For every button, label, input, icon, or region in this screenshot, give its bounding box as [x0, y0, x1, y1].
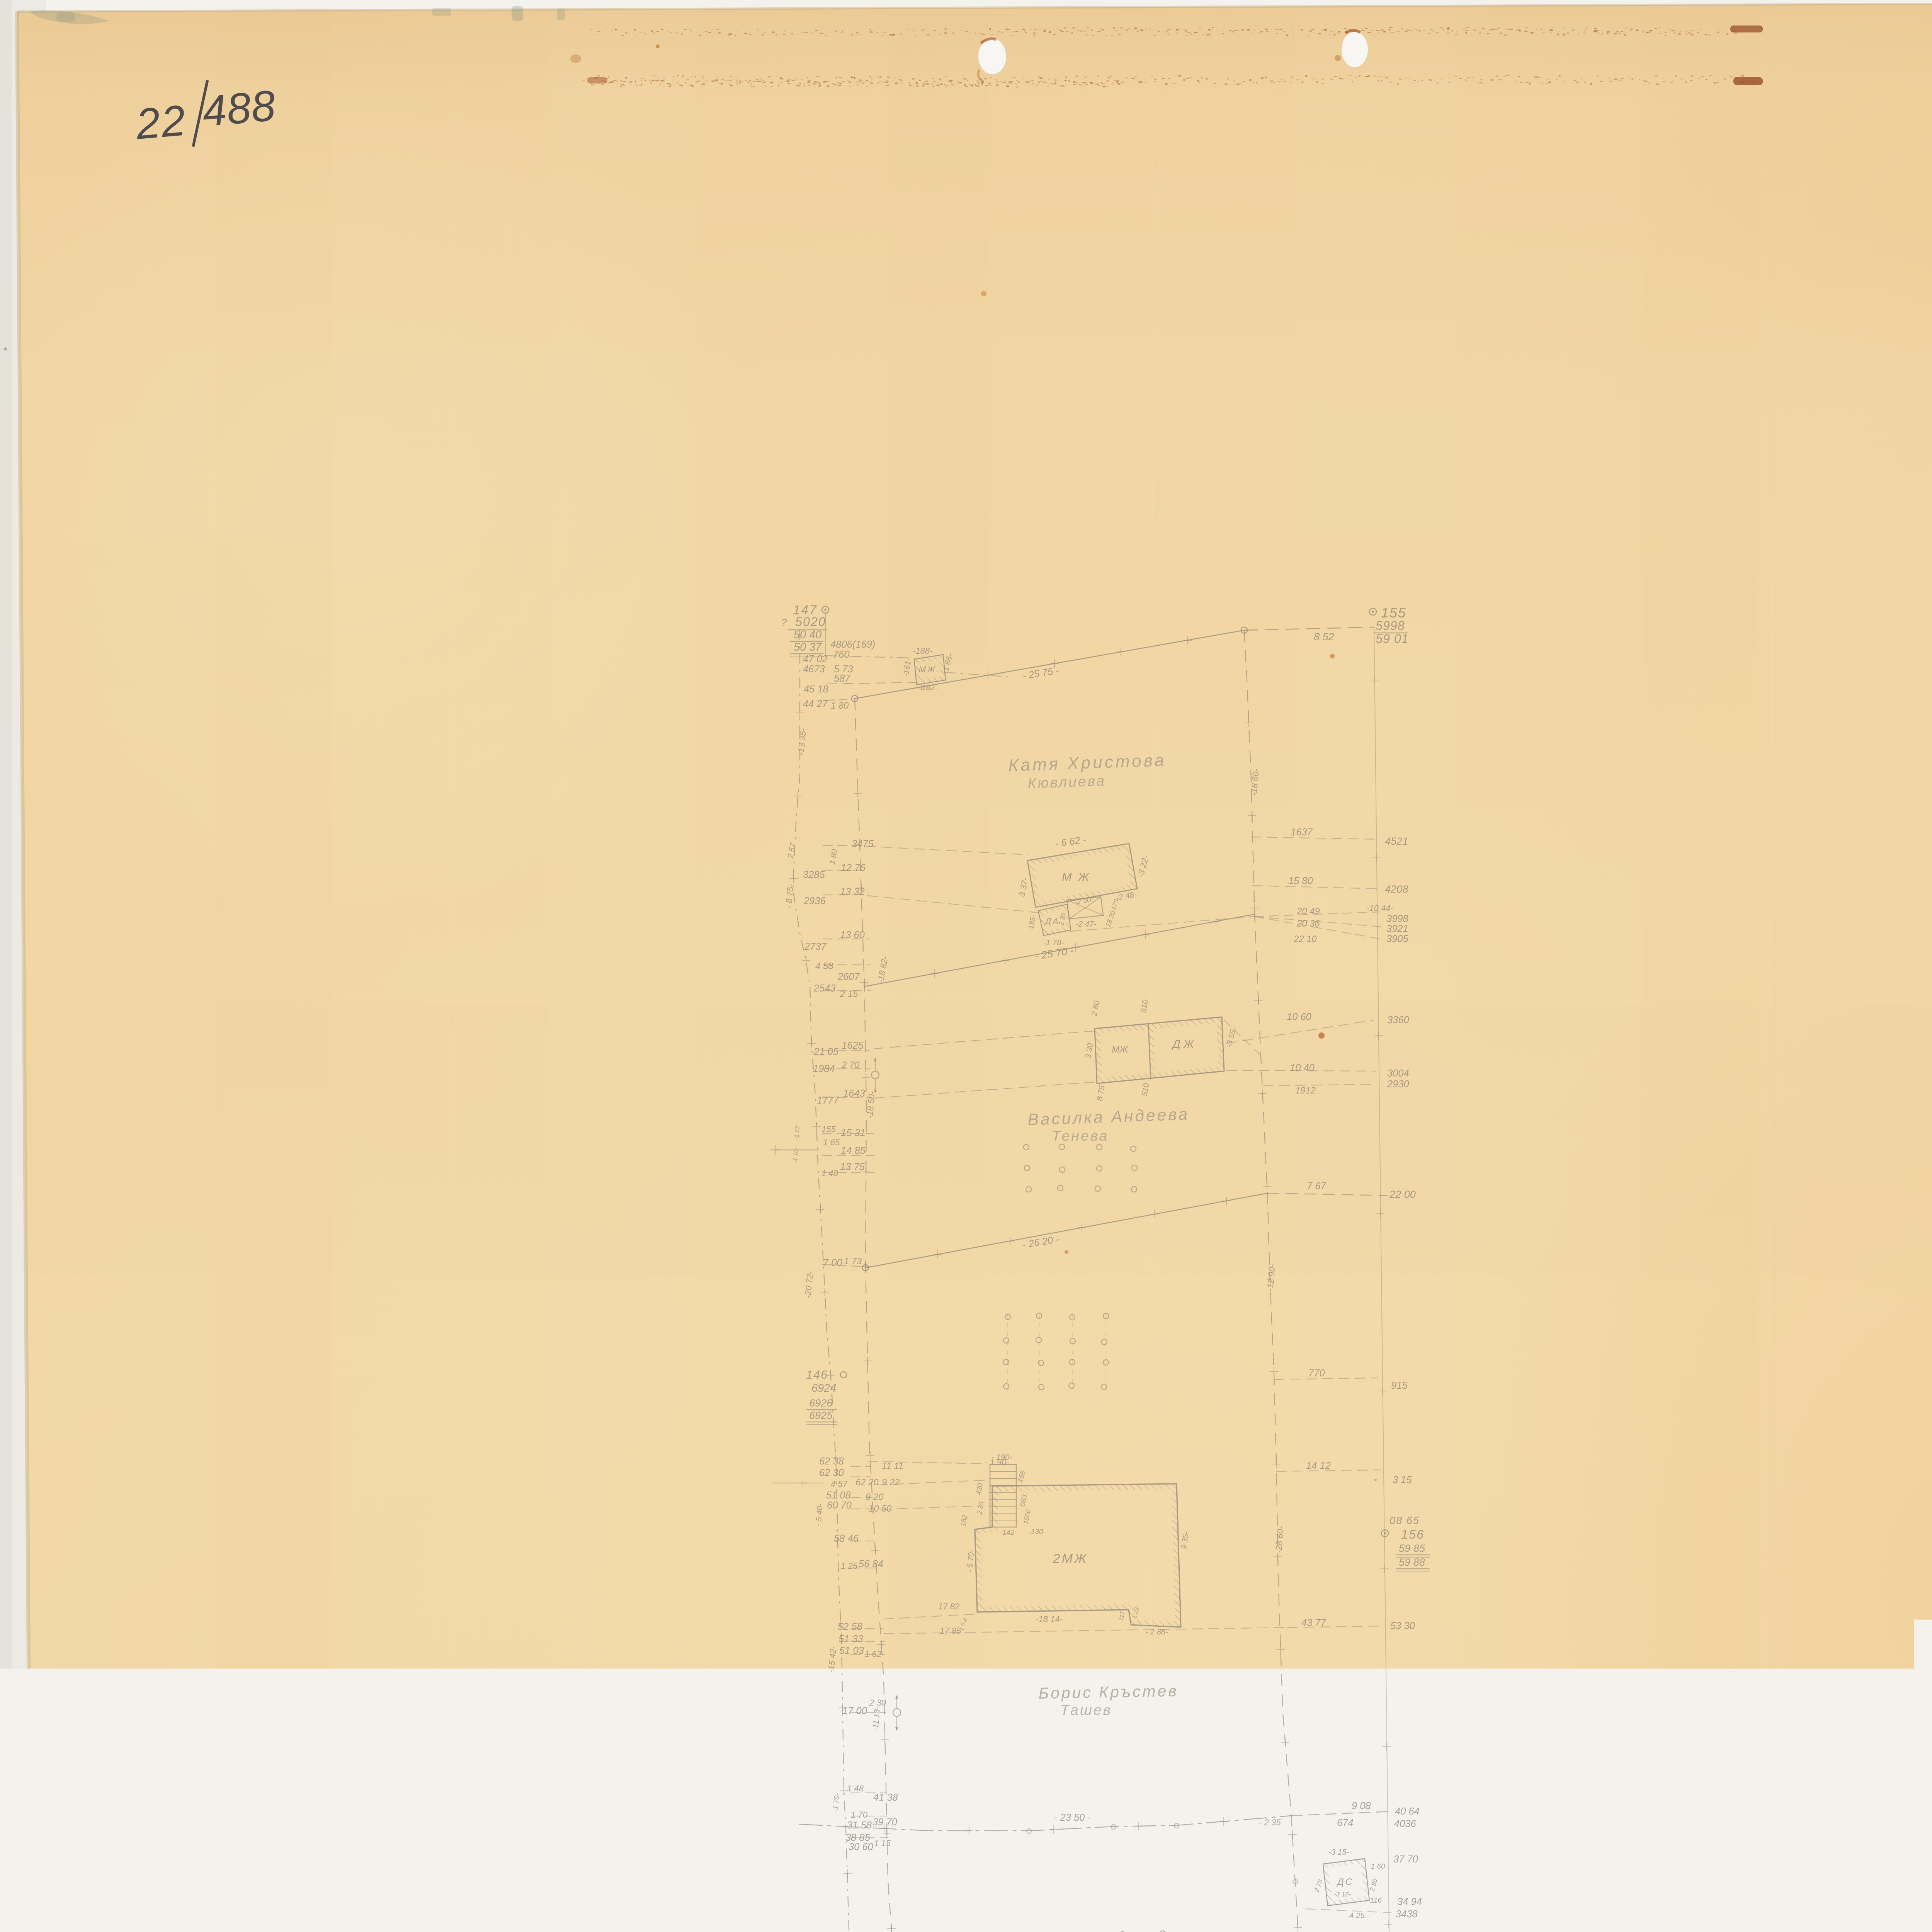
svg-text:1912: 1912	[1295, 1085, 1316, 1096]
svg-text:2737: 2737	[804, 941, 827, 952]
svg-text:Тенева: Тенева	[1052, 1128, 1109, 1144]
svg-text:156: 156	[1401, 1527, 1424, 1541]
svg-text:12 76: 12 76	[841, 862, 866, 873]
svg-text:587: 587	[834, 673, 850, 684]
svg-text:Кювлиева: Кювлиева	[1027, 772, 1106, 791]
svg-text:1 25: 1 25	[841, 1561, 858, 1571]
svg-text:674: 674	[1337, 1818, 1354, 1828]
svg-text:62 38: 62 38	[819, 1456, 844, 1467]
svg-text:155: 155	[1381, 605, 1406, 621]
svg-text:53 30: 53 30	[1390, 1621, 1415, 1631]
svg-text:-188-: -188-	[913, 646, 933, 656]
svg-text:3921: 3921	[1386, 923, 1408, 934]
svg-text:1 48: 1 48	[821, 1168, 838, 1178]
svg-text:-1 12-: -1 12-	[793, 1124, 801, 1140]
svg-text:4 57: 4 57	[831, 1479, 848, 1489]
svg-text:-10 44-: -10 44-	[1366, 903, 1393, 913]
svg-text:50 40: 50 40	[794, 629, 821, 641]
svg-text:146: 146	[806, 1368, 828, 1381]
svg-text:17 82: 17 82	[938, 1602, 959, 1611]
svg-text:6926: 6926	[809, 1397, 833, 1409]
svg-text:3438: 3438	[1396, 1909, 1418, 1920]
svg-text:Д Ж: Д Ж	[1172, 1038, 1194, 1051]
svg-text:1 80: 1 80	[831, 701, 849, 711]
svg-text:20 36: 20 36	[1296, 918, 1320, 929]
svg-text:1 70: 1 70	[851, 1810, 868, 1820]
svg-text:-2 47-: -2 47-	[1076, 920, 1096, 929]
svg-text:4673: 4673	[803, 664, 825, 675]
svg-text:1777: 1777	[817, 1095, 839, 1106]
svg-text:-18 14-: -18 14-	[1036, 1614, 1063, 1624]
svg-text:116: 116	[1370, 1896, 1382, 1904]
svg-text:- 1 90-: - 1 90-	[985, 1458, 1009, 1467]
svg-text:34 94: 34 94	[1397, 1896, 1422, 1907]
svg-text:40 64: 40 64	[1395, 1806, 1420, 1817]
svg-text:59 85: 59 85	[1399, 1542, 1425, 1554]
svg-text:-1 78-: -1 78-	[1043, 939, 1064, 947]
svg-text:3004: 3004	[1387, 1068, 1409, 1079]
svg-text:2543: 2543	[813, 983, 836, 994]
svg-text:488: 488	[200, 81, 277, 136]
svg-text:760: 760	[833, 649, 850, 660]
svg-text:- 2 35: - 2 35	[1259, 1818, 1281, 1827]
svg-text:4806(169): 4806(169)	[830, 639, 875, 650]
svg-text:770: 770	[1308, 1368, 1325, 1379]
svg-text:1 65: 1 65	[823, 1138, 840, 1147]
svg-text:47 02: 47 02	[803, 654, 828, 665]
svg-text:4521: 4521	[1385, 835, 1408, 847]
svg-text:13 32: 13 32	[840, 886, 865, 897]
svg-text:1 15: 1 15	[874, 1838, 891, 1848]
svg-text:-3 15-: -3 15-	[1328, 1848, 1349, 1857]
svg-text:22: 22	[134, 96, 189, 148]
svg-text:3905: 3905	[1386, 934, 1409, 944]
svg-text:45 18: 45 18	[804, 684, 829, 695]
svg-text:155: 155	[821, 1124, 836, 1134]
svg-text:4036: 4036	[1394, 1818, 1417, 1829]
svg-text:-130-: -130-	[1029, 1527, 1046, 1536]
svg-text:51 08: 51 08	[826, 1490, 851, 1501]
svg-text:8 52: 8 52	[1314, 631, 1334, 643]
svg-text:3360: 3360	[1387, 1015, 1409, 1026]
svg-text:7 67: 7 67	[1307, 1181, 1326, 1192]
svg-text:1 73: 1 73	[844, 1256, 862, 1267]
svg-text:14 12: 14 12	[1306, 1461, 1331, 1471]
svg-text:9 08: 9 08	[1352, 1801, 1371, 1811]
svg-text:1637: 1637	[1291, 827, 1313, 838]
svg-text:2936: 2936	[803, 896, 826, 906]
svg-text:1 60: 1 60	[1371, 1862, 1385, 1870]
svg-text:3285: 3285	[803, 869, 825, 880]
svg-text:22 10: 22 10	[1293, 934, 1317, 944]
svg-text:14 85: 14 85	[841, 1145, 866, 1156]
svg-text:31 58: 31 58	[847, 1820, 872, 1831]
svg-text:10 40: 10 40	[1290, 1063, 1315, 1073]
svg-text:4208: 4208	[1385, 883, 1408, 895]
svg-text:2МЖ: 2МЖ	[1053, 1551, 1088, 1566]
svg-text:6924: 6924	[811, 1382, 836, 1395]
svg-text:МЖ: МЖ	[1112, 1044, 1128, 1055]
svg-text:9 22: 9 22	[882, 1477, 900, 1488]
svg-text:62 20: 62 20	[855, 1477, 879, 1488]
svg-text:50 37: 50 37	[794, 641, 822, 653]
svg-text:Борис Кръстев: Борис Кръстев	[1038, 1682, 1179, 1702]
svg-text:?: ?	[781, 617, 787, 628]
svg-text:-3 16-: -3 16-	[1334, 1891, 1351, 1898]
svg-text:37 70: 37 70	[1393, 1854, 1418, 1865]
svg-text:17 00: 17 00	[842, 1706, 867, 1716]
svg-text:915: 915	[1391, 1380, 1408, 1391]
svg-text:15 31: 15 31	[841, 1128, 866, 1138]
svg-text:08 65: 08 65	[1389, 1514, 1420, 1526]
svg-text:4 58: 4 58	[815, 961, 833, 971]
svg-text:11 11: 11 11	[882, 1461, 903, 1471]
svg-text:3 15: 3 15	[1393, 1475, 1412, 1485]
svg-text:59 88: 59 88	[1399, 1556, 1425, 1568]
svg-text:20 49: 20 49	[1296, 906, 1320, 917]
svg-text:43 77: 43 77	[1301, 1617, 1327, 1628]
svg-text:4 25: 4 25	[1349, 1912, 1365, 1920]
svg-text:41 38: 41 38	[873, 1792, 898, 1803]
svg-text:17 85: 17 85	[940, 1626, 961, 1636]
svg-text:1 62: 1 62	[865, 1649, 881, 1659]
svg-text:30 60: 30 60	[849, 1842, 873, 1852]
svg-text:13 75: 13 75	[840, 1162, 865, 1172]
svg-text:10 60: 10 60	[1287, 1012, 1311, 1022]
svg-text:Ташев: Ташев	[1060, 1702, 1112, 1718]
svg-text:2 30: 2 30	[869, 1698, 886, 1708]
svg-text:59 01: 59 01	[1376, 632, 1409, 646]
svg-text:22 00: 22 00	[1389, 1188, 1416, 1200]
svg-text:М Ж: М Ж	[1062, 871, 1090, 884]
svg-text:52 58: 52 58	[838, 1621, 863, 1632]
svg-text:9 20: 9 20	[866, 1492, 884, 1502]
svg-text:51 33: 51 33	[838, 1634, 863, 1645]
svg-text:44 27: 44 27	[803, 699, 828, 709]
svg-text:3475: 3475	[852, 838, 874, 849]
svg-text:21 05: 21 05	[813, 1046, 839, 1057]
svg-text:62 30: 62 30	[819, 1468, 844, 1478]
svg-text:-1 70-: -1 70-	[831, 1793, 841, 1812]
svg-text:2607: 2607	[837, 971, 860, 982]
svg-text:5998: 5998	[1376, 619, 1405, 633]
svg-text:5020: 5020	[795, 615, 826, 629]
svg-text:-182-: -182-	[919, 684, 937, 692]
svg-text:6925: 6925	[809, 1409, 833, 1421]
svg-text:39 70: 39 70	[872, 1817, 897, 1828]
svg-text:58 46: 58 46	[834, 1533, 859, 1544]
svg-text:- 23 50 -: - 23 50 -	[1054, 1812, 1091, 1823]
svg-text:МЖ.: МЖ.	[919, 665, 941, 674]
svg-text:7 00: 7 00	[823, 1257, 842, 1268]
svg-text:3998: 3998	[1386, 913, 1409, 924]
svg-text:2930: 2930	[1387, 1079, 1409, 1090]
svg-text:ДС: ДС	[1336, 1877, 1354, 1887]
svg-text:1625: 1625	[842, 1040, 864, 1051]
svg-text:-142-: -142-	[1000, 1528, 1017, 1536]
svg-text:60 70: 60 70	[827, 1500, 852, 1511]
svg-text:15 80: 15 80	[1288, 876, 1313, 886]
